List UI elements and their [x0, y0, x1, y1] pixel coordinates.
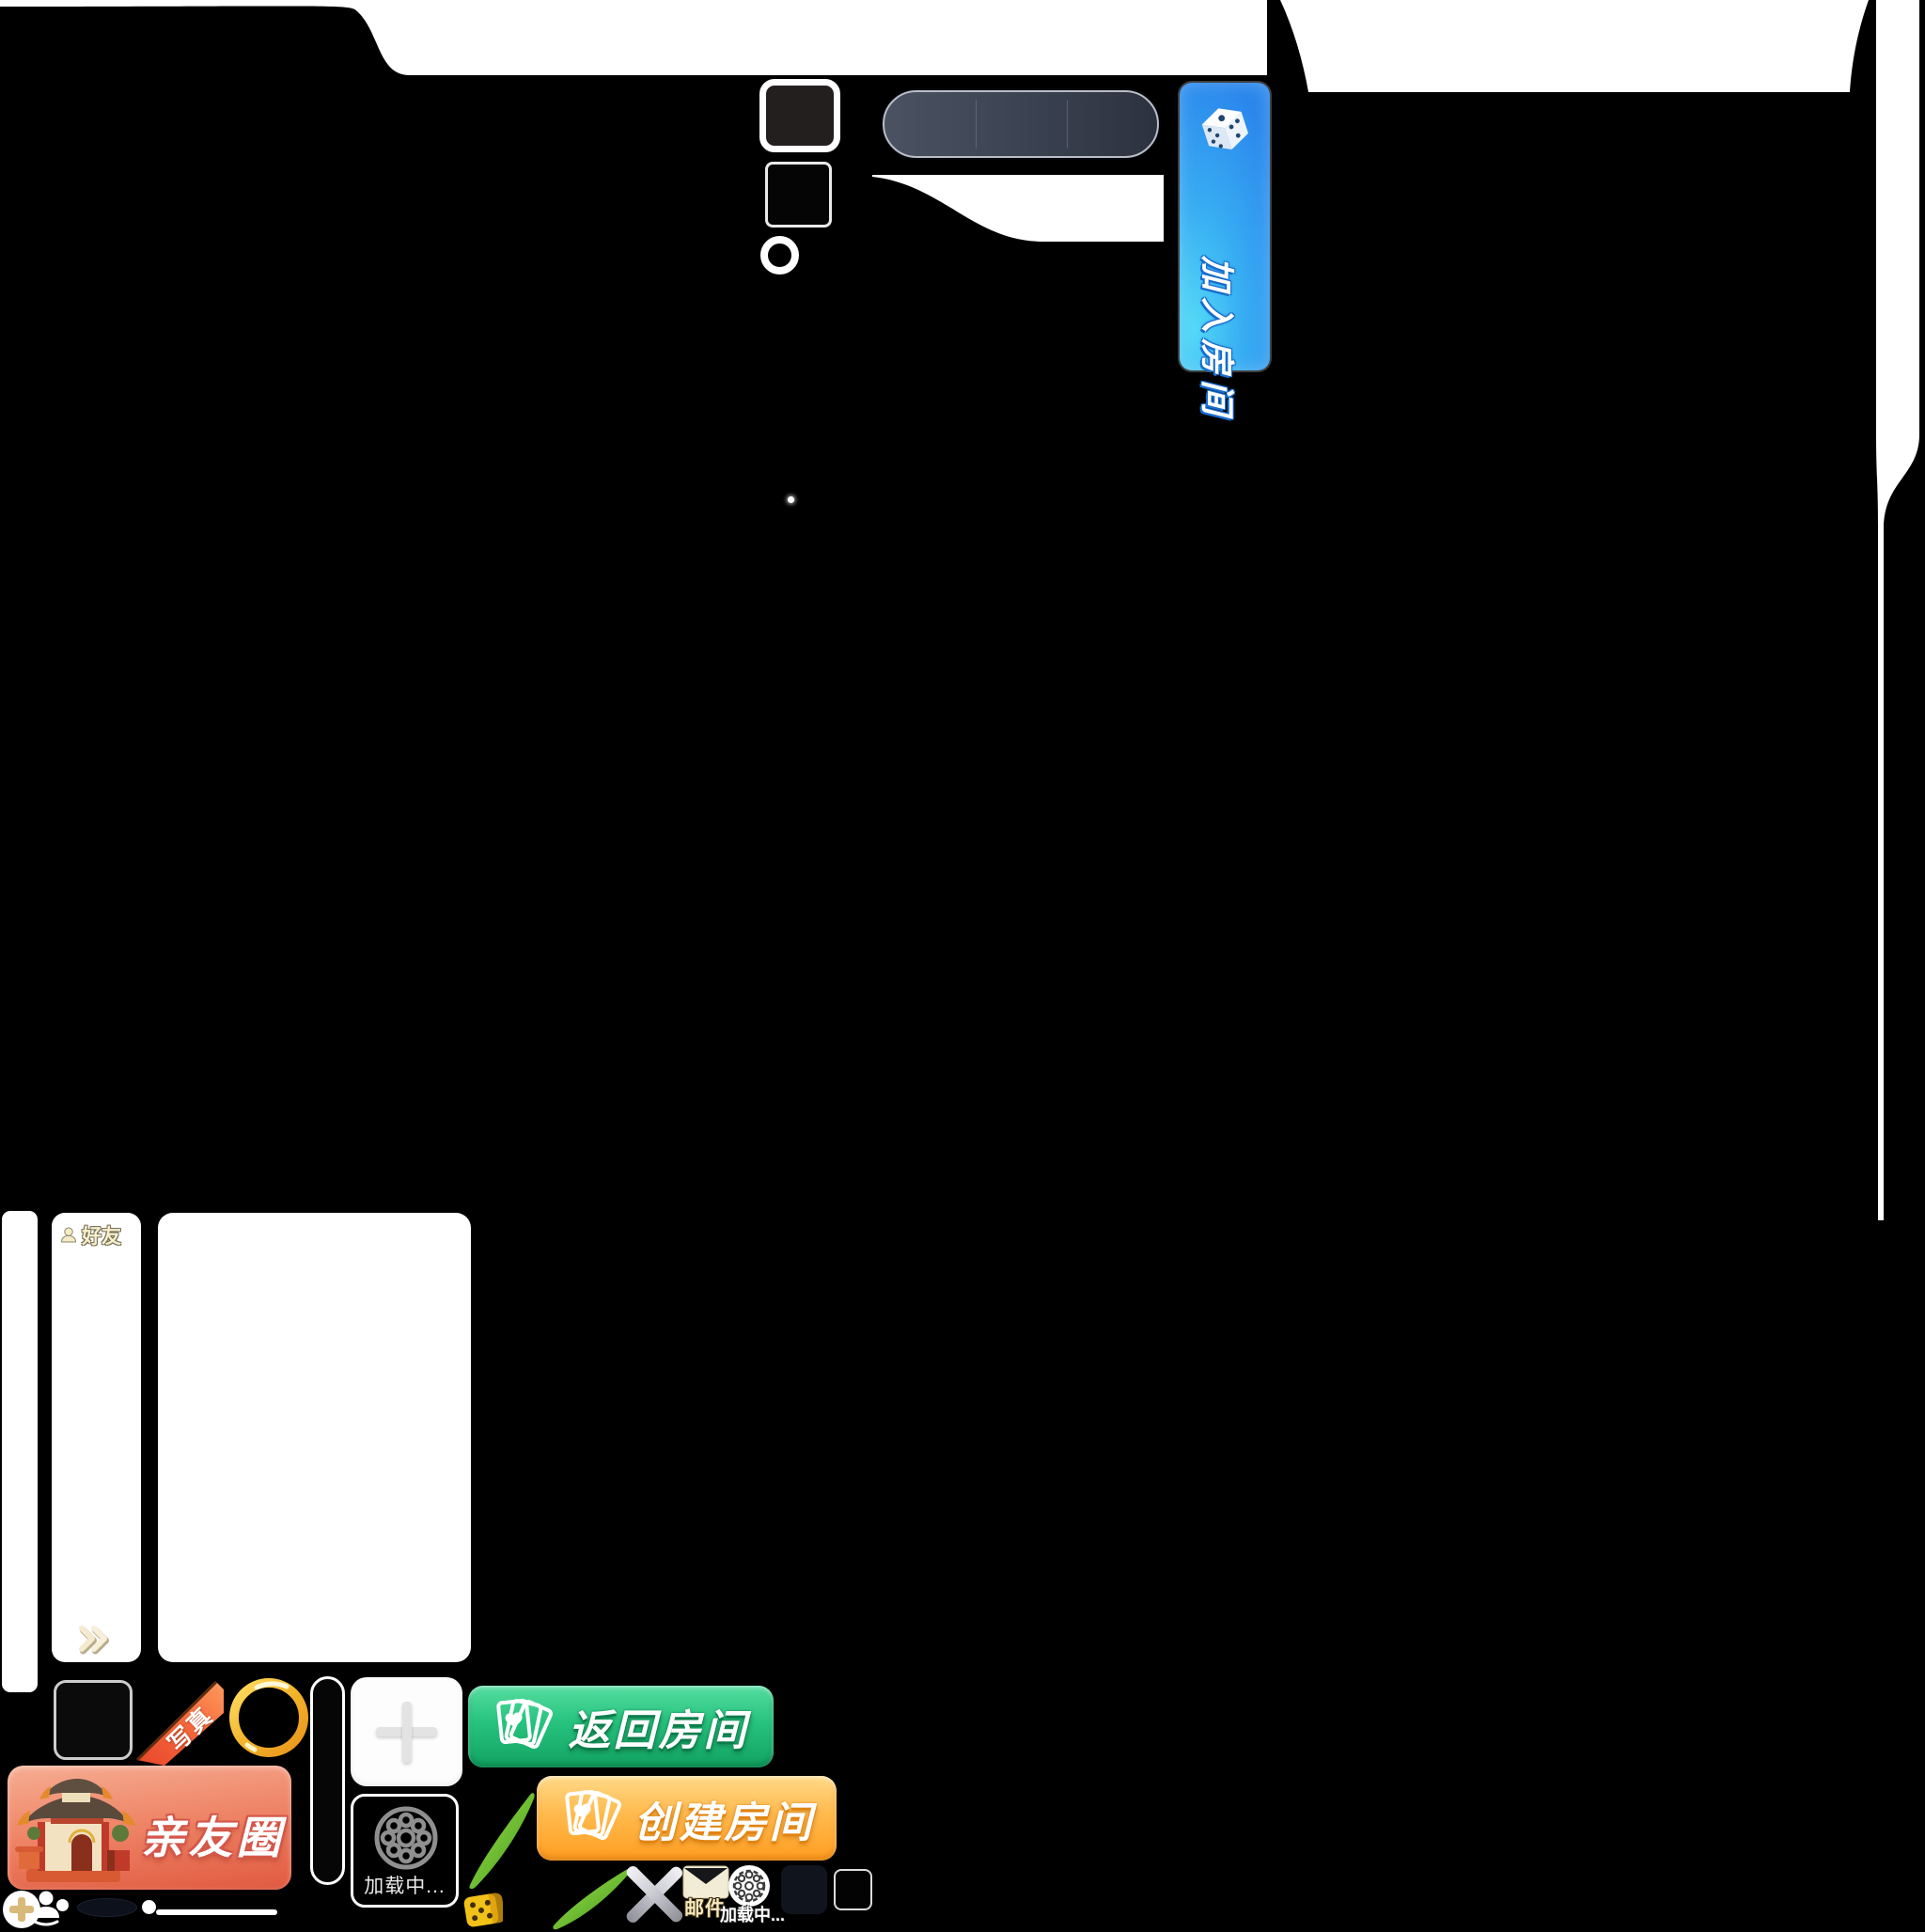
friends-title: 好友: [82, 1221, 121, 1249]
dark-slot-small: [781, 1865, 827, 1914]
top-slot-button: [759, 79, 840, 152]
status-dot: [56, 1899, 69, 1911]
playing-cards-icon: [489, 1697, 556, 1757]
friends-panel[interactable]: 好友: [52, 1213, 141, 1662]
person-icon: [59, 1226, 78, 1245]
pill-separator: [1067, 100, 1068, 149]
loading-tile-button[interactable]: 加载中...: [351, 1794, 459, 1908]
cross-icon[interactable]: [621, 1863, 687, 1925]
yellow-dice-icon: [460, 1890, 503, 1931]
plus-icon: [402, 1702, 412, 1763]
sparkle-dot: [788, 496, 794, 503]
join-room-button[interactable]: 加入房间: [1180, 83, 1270, 370]
friends-list-panel: [158, 1213, 471, 1662]
top-checkbox-slot: [765, 162, 832, 228]
vertical-pill-slot: [310, 1676, 345, 1885]
gold-ring: [228, 1678, 309, 1759]
pill-separator: [976, 100, 977, 149]
dice-icon: [1197, 102, 1255, 160]
return-room-button[interactable]: 返回房间: [468, 1686, 774, 1767]
corner-ribbon: 写真: [132, 1675, 230, 1769]
bamboo-leaf: [547, 1866, 632, 1932]
bordered-slot-small: [834, 1869, 872, 1910]
loading-tile-label: 加载中...: [353, 1871, 456, 1899]
friends-header: 好友: [59, 1221, 121, 1249]
top-right-white-block: [1280, 0, 1869, 92]
top-ring-marker: [760, 236, 799, 275]
progress-line: [156, 1909, 277, 1915]
avatar-slot: [54, 1680, 133, 1760]
shadow-slot: [77, 1898, 137, 1917]
double-chevron-right-icon[interactable]: [76, 1623, 110, 1655]
create-room-label: 创建房间: [625, 1788, 837, 1849]
game-lobby-screenshot: { "buttons": { "join_room": "加入房间", "ret…: [0, 0, 1925, 1925]
playing-cards-icon: [557, 1788, 625, 1848]
add-button[interactable]: [351, 1677, 462, 1786]
mid-white-band: [872, 175, 1164, 242]
temple-illustration: [9, 1767, 149, 1890]
right-edge-white-strip: [1876, 0, 1919, 1220]
bamboo-leaf: [457, 1791, 541, 1894]
room-id-bar[interactable]: [883, 90, 1159, 158]
left-white-bar: [2, 1211, 38, 1692]
top-white-band: [0, 0, 1267, 75]
join-room-label: 加入房间: [1204, 251, 1245, 426]
return-room-label: 返回房间: [556, 1696, 774, 1757]
flower-medallion-icon: [373, 1805, 439, 1871]
friend-circle-button[interactable]: 亲友圈: [8, 1766, 291, 1890]
friend-circle-label: 亲友圈: [137, 1801, 288, 1866]
create-room-button[interactable]: 创建房间: [537, 1776, 837, 1861]
progress-dot: [142, 1900, 156, 1914]
